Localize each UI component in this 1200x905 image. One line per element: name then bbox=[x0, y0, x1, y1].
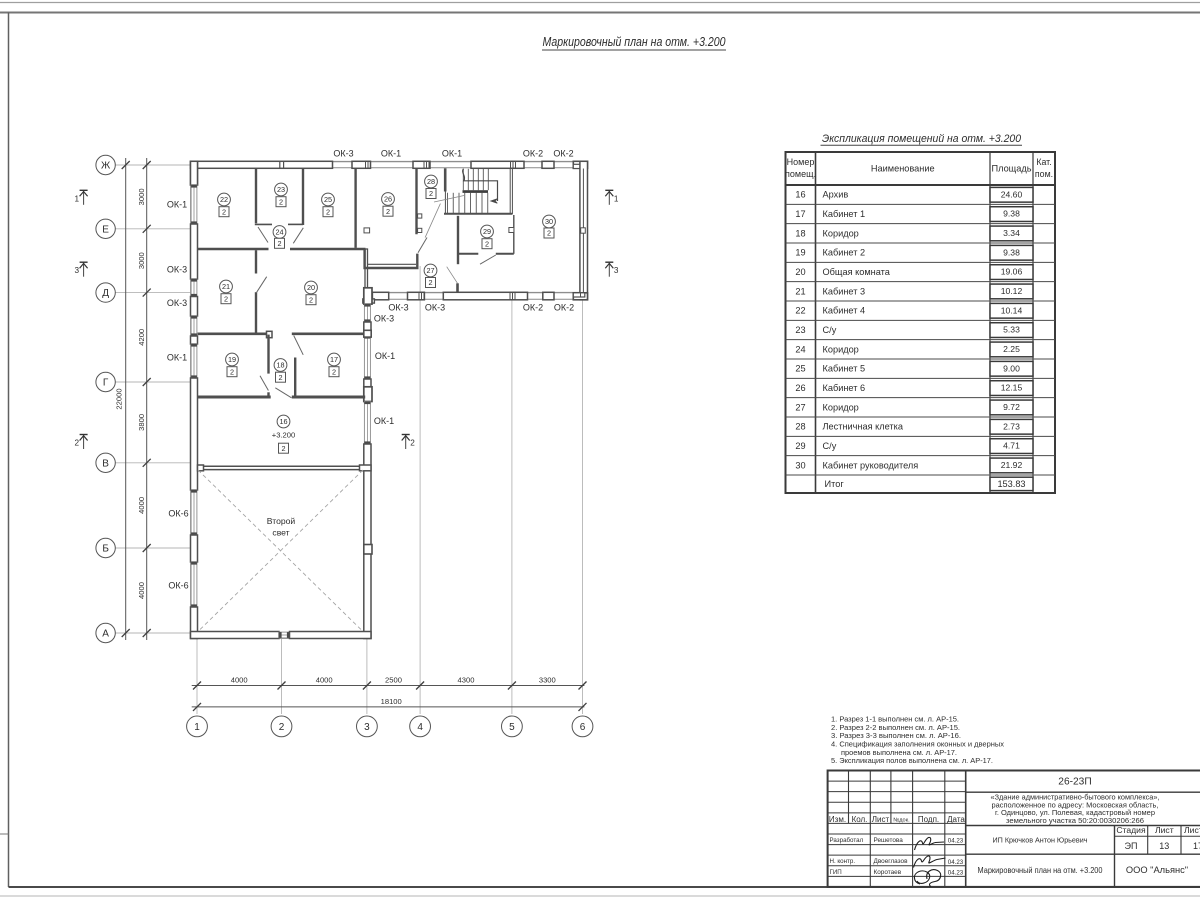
svg-text:28: 28 bbox=[427, 177, 435, 186]
svg-text:25: 25 bbox=[324, 195, 332, 204]
svg-text:ОК-3: ОК-3 bbox=[374, 314, 394, 324]
svg-text:30: 30 bbox=[545, 217, 553, 226]
svg-text:4000: 4000 bbox=[316, 676, 333, 685]
svg-text:Г: Г bbox=[103, 378, 109, 389]
svg-text:2: 2 bbox=[332, 367, 336, 376]
svg-text:04.23: 04.23 bbox=[948, 870, 964, 877]
svg-text:Номер: Номер bbox=[787, 157, 815, 167]
svg-text:2: 2 bbox=[326, 207, 330, 216]
svg-text:26: 26 bbox=[384, 195, 392, 204]
svg-text:Д: Д bbox=[102, 288, 109, 299]
svg-text:свет: свет bbox=[272, 528, 289, 538]
svg-text:Е: Е bbox=[102, 224, 109, 235]
svg-text:Коридор: Коридор bbox=[823, 344, 859, 354]
svg-text:2500: 2500 bbox=[385, 676, 402, 685]
svg-text:1: 1 bbox=[194, 722, 200, 733]
svg-text:3.34: 3.34 bbox=[1003, 228, 1020, 238]
svg-text:Коридор: Коридор bbox=[823, 228, 859, 238]
svg-text:10.14: 10.14 bbox=[1001, 305, 1023, 315]
svg-text:4000: 4000 bbox=[137, 497, 146, 514]
svg-text:18: 18 bbox=[795, 228, 805, 238]
svg-text:2: 2 bbox=[429, 189, 433, 198]
svg-text:4000: 4000 bbox=[137, 582, 146, 599]
svg-text:30: 30 bbox=[795, 460, 805, 470]
svg-text:27: 27 bbox=[426, 266, 434, 275]
svg-text:ОК-3: ОК-3 bbox=[388, 303, 408, 313]
svg-text:26-23П: 26-23П bbox=[1058, 777, 1091, 788]
svg-text:3000: 3000 bbox=[137, 252, 146, 269]
svg-text:ОК-2: ОК-2 bbox=[523, 303, 543, 313]
svg-text:Двоеглазов: Двоеглазов bbox=[874, 858, 909, 865]
svg-text:26: 26 bbox=[795, 383, 805, 393]
svg-text:ОК-1: ОК-1 bbox=[374, 416, 394, 426]
svg-text:12.15: 12.15 bbox=[1001, 383, 1023, 393]
svg-text:Кабинет 1: Кабинет 1 bbox=[823, 209, 866, 219]
svg-text:17: 17 bbox=[330, 355, 338, 364]
svg-text:Ж: Ж bbox=[101, 161, 111, 172]
svg-text:Кабинет 6: Кабинет 6 bbox=[823, 383, 866, 393]
svg-text:22: 22 bbox=[220, 195, 228, 204]
svg-text:3800: 3800 bbox=[137, 414, 146, 431]
svg-text:ИП Крючков Антон Юрьевич: ИП Крючков Антон Юрьевич bbox=[993, 836, 1088, 845]
svg-text:ГИП: ГИП bbox=[830, 869, 842, 876]
svg-text:2: 2 bbox=[386, 207, 390, 216]
svg-text:Изм.: Изм. bbox=[829, 815, 846, 824]
svg-text:25: 25 bbox=[795, 364, 805, 374]
svg-text:13: 13 bbox=[1159, 841, 1169, 851]
svg-text:5. Экспликация полов выполнена: 5. Экспликация полов выполнена см. л. АР… bbox=[831, 756, 993, 765]
svg-text:4000: 4000 bbox=[231, 676, 248, 685]
svg-text:ОК-1: ОК-1 bbox=[167, 200, 187, 210]
svg-text:Стадия: Стадия bbox=[1116, 825, 1146, 835]
svg-text:5.33: 5.33 bbox=[1003, 325, 1020, 335]
svg-text:ОК-2: ОК-2 bbox=[553, 149, 573, 159]
svg-text:Итог: Итог bbox=[825, 479, 845, 489]
svg-text:3000: 3000 bbox=[137, 188, 146, 205]
svg-text:Архив: Архив bbox=[823, 190, 849, 200]
svg-text:В: В bbox=[102, 458, 109, 469]
svg-text:Кабинет руководителя: Кабинет руководителя bbox=[823, 460, 919, 470]
svg-text:16: 16 bbox=[795, 190, 805, 200]
svg-text:Лист: Лист bbox=[1155, 825, 1174, 835]
svg-text:3: 3 bbox=[614, 266, 619, 275]
svg-text:помещ.: помещ. bbox=[785, 169, 816, 179]
svg-text:С/у: С/у bbox=[823, 441, 837, 451]
svg-text:Коротаев: Коротаев bbox=[874, 869, 902, 876]
svg-text:17: 17 bbox=[795, 209, 805, 219]
svg-text:18100: 18100 bbox=[381, 697, 402, 706]
svg-text:Экспликация помещений на отм.: Экспликация помещений на отм. +3.200 bbox=[822, 133, 1021, 145]
svg-text:10.12: 10.12 bbox=[1001, 286, 1023, 296]
svg-text:ОК-1: ОК-1 bbox=[167, 353, 187, 363]
svg-text:Листов: Листов bbox=[1184, 825, 1200, 835]
svg-text:2: 2 bbox=[279, 197, 283, 206]
svg-text:21.92: 21.92 bbox=[1001, 460, 1023, 470]
svg-text:Кабинет 2: Кабинет 2 bbox=[823, 248, 866, 258]
svg-text:Коридор: Коридор bbox=[823, 402, 859, 412]
svg-text:4: 4 bbox=[417, 722, 423, 733]
svg-text:ОК-3: ОК-3 bbox=[333, 149, 353, 159]
svg-text:ОК-1: ОК-1 bbox=[442, 149, 462, 159]
svg-text:Площадь: Площадь bbox=[992, 164, 1032, 174]
svg-text:земельного участка 50:20:00302: земельного участка 50:20:0030206:266 bbox=[1006, 816, 1144, 825]
svg-text:2.73: 2.73 bbox=[1003, 421, 1020, 431]
svg-text:2: 2 bbox=[230, 367, 234, 376]
svg-text:Маркировочный план на отм. +3.: Маркировочный план на отм. +3.200 bbox=[543, 34, 727, 49]
svg-text:9.72: 9.72 bbox=[1003, 402, 1020, 412]
svg-text:9.38: 9.38 bbox=[1003, 247, 1020, 257]
svg-text:28: 28 bbox=[795, 422, 805, 432]
svg-text:ОК-1: ОК-1 bbox=[375, 351, 395, 361]
svg-text:Второй: Второй bbox=[267, 516, 296, 526]
svg-text:3: 3 bbox=[75, 266, 80, 275]
svg-text:2: 2 bbox=[278, 373, 282, 382]
svg-text:27: 27 bbox=[795, 402, 805, 412]
svg-text:ОК-3: ОК-3 bbox=[425, 303, 445, 313]
svg-text:04.23: 04.23 bbox=[948, 838, 964, 845]
svg-text:Подп.: Подп. bbox=[918, 815, 939, 824]
svg-text:24.60: 24.60 bbox=[1001, 189, 1023, 199]
svg-text:Дата: Дата bbox=[947, 815, 965, 824]
svg-text:5: 5 bbox=[509, 722, 515, 733]
svg-text:ОК-6: ОК-6 bbox=[168, 581, 188, 591]
svg-text:Разработал: Разработал bbox=[830, 837, 864, 844]
svg-text:9.38: 9.38 bbox=[1003, 209, 1020, 219]
svg-text:пом.: пом. bbox=[1035, 169, 1053, 179]
svg-text:ОК-2: ОК-2 bbox=[523, 149, 543, 159]
svg-text:ЭП: ЭП bbox=[1125, 841, 1138, 851]
svg-text:ОК-1: ОК-1 bbox=[381, 149, 401, 159]
svg-text:ОК-2: ОК-2 bbox=[554, 303, 574, 313]
svg-text:2: 2 bbox=[309, 295, 313, 304]
svg-text:2: 2 bbox=[410, 439, 415, 448]
svg-text:18: 18 bbox=[276, 361, 284, 370]
svg-text:2.25: 2.25 bbox=[1003, 344, 1020, 354]
svg-text:2: 2 bbox=[224, 294, 228, 303]
svg-text:6: 6 bbox=[580, 722, 586, 733]
svg-text:20: 20 bbox=[795, 267, 805, 277]
svg-text:Общая комната: Общая комната bbox=[823, 267, 891, 277]
svg-text:1: 1 bbox=[614, 194, 619, 203]
svg-text:Кол.: Кол. bbox=[852, 815, 868, 824]
svg-text:23: 23 bbox=[795, 325, 805, 335]
svg-text:Лист: Лист bbox=[872, 815, 890, 824]
svg-text:С/у: С/у bbox=[823, 325, 837, 335]
svg-text:4.71: 4.71 bbox=[1003, 441, 1020, 451]
svg-text:24: 24 bbox=[275, 228, 283, 237]
svg-text:29: 29 bbox=[795, 441, 805, 451]
svg-text:153.83: 153.83 bbox=[997, 479, 1025, 489]
svg-text:22000: 22000 bbox=[115, 388, 124, 409]
svg-text:22: 22 bbox=[795, 306, 805, 316]
svg-text:1: 1 bbox=[75, 194, 80, 203]
svg-text:2: 2 bbox=[75, 439, 80, 448]
svg-text:21: 21 bbox=[222, 282, 230, 291]
svg-text:17: 17 bbox=[1193, 841, 1200, 851]
svg-text:19: 19 bbox=[228, 355, 236, 364]
svg-text:Решетова: Решетова bbox=[874, 837, 904, 844]
svg-text:Кабинет 4: Кабинет 4 bbox=[823, 306, 866, 316]
svg-text:4200: 4200 bbox=[137, 329, 146, 346]
svg-text:04.23: 04.23 bbox=[948, 859, 964, 866]
svg-text:21: 21 bbox=[795, 286, 805, 296]
svg-text:16: 16 bbox=[279, 417, 287, 426]
svg-text:4300: 4300 bbox=[458, 676, 475, 685]
svg-text:ООО "Альянс": ООО "Альянс" bbox=[1126, 865, 1188, 875]
svg-text:9.00: 9.00 bbox=[1003, 363, 1020, 373]
svg-text:2: 2 bbox=[222, 207, 226, 216]
svg-text:Н. контр.: Н. контр. bbox=[830, 858, 856, 865]
svg-text:Кабинет 5: Кабинет 5 bbox=[823, 364, 866, 374]
svg-text:+3.200: +3.200 bbox=[272, 430, 295, 439]
svg-text:2: 2 bbox=[277, 239, 281, 248]
svg-text:2: 2 bbox=[279, 722, 285, 733]
svg-text:Наименование: Наименование bbox=[871, 164, 935, 174]
svg-text:3300: 3300 bbox=[539, 676, 556, 685]
svg-text:№док.: №док. bbox=[893, 818, 910, 824]
svg-text:Б: Б bbox=[102, 544, 109, 555]
svg-text:2: 2 bbox=[547, 229, 551, 238]
svg-text:Кат.: Кат. bbox=[1036, 157, 1051, 167]
svg-text:19: 19 bbox=[795, 248, 805, 258]
svg-text:24: 24 bbox=[795, 344, 805, 354]
svg-text:Маркировочный план на отм. +3.: Маркировочный план на отм. +3.200 bbox=[978, 866, 1104, 875]
svg-text:ОК-6: ОК-6 bbox=[168, 509, 188, 519]
svg-text:2: 2 bbox=[428, 278, 432, 287]
svg-text:29: 29 bbox=[483, 227, 491, 236]
svg-text:20: 20 bbox=[307, 283, 315, 292]
svg-text:2: 2 bbox=[281, 444, 285, 453]
svg-text:2: 2 bbox=[485, 239, 489, 248]
svg-text:Лестничная клетка: Лестничная клетка bbox=[823, 422, 904, 432]
svg-text:3: 3 bbox=[364, 722, 370, 733]
svg-text:А: А bbox=[102, 629, 109, 640]
svg-text:ОК-3: ОК-3 bbox=[167, 265, 187, 275]
svg-text:Кабинет 3: Кабинет 3 bbox=[823, 286, 866, 296]
svg-text:ОК-3: ОК-3 bbox=[167, 298, 187, 308]
svg-text:23: 23 bbox=[277, 185, 285, 194]
svg-text:19.06: 19.06 bbox=[1001, 267, 1023, 277]
